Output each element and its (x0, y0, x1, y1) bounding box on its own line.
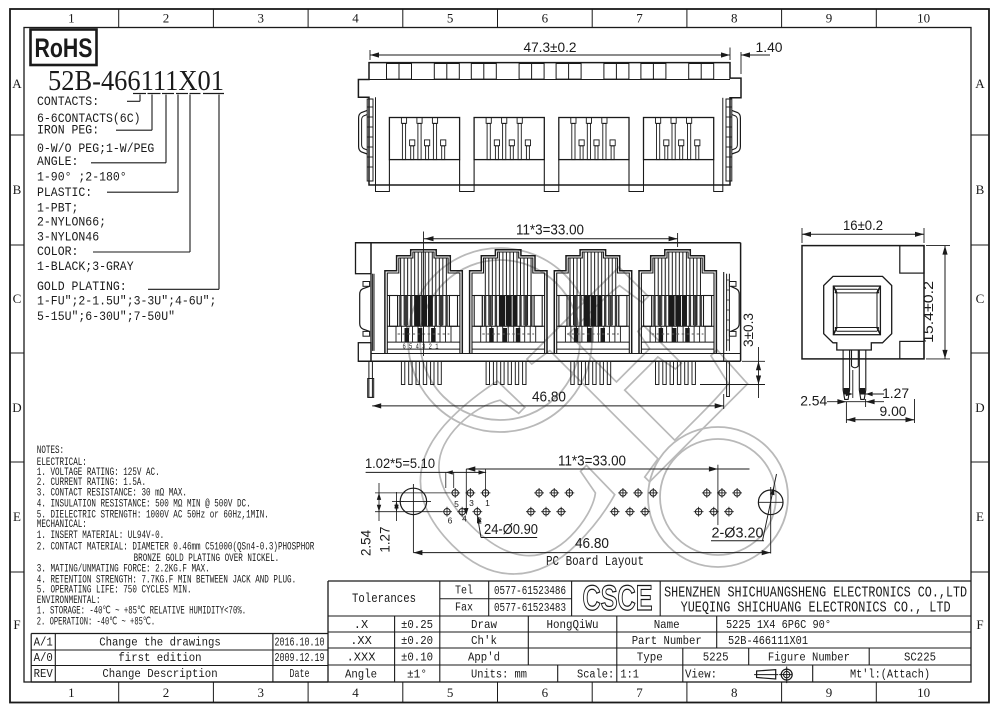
svg-text:1-PBT;: 1-PBT; (37, 202, 78, 216)
svg-text:5225: 5225 (703, 651, 729, 665)
svg-text:REV: REV (34, 667, 54, 681)
svg-text:C: C (13, 291, 22, 306)
svg-text:1-BLACK;3-GRAY: 1-BLACK;3-GRAY (37, 260, 134, 274)
svg-text:0-W/O PEG;1-W/PEG: 0-W/O PEG;1-W/PEG (37, 142, 154, 156)
svg-text:PC Board Layout: PC Board Layout (546, 555, 644, 570)
svg-text:2: 2 (163, 11, 170, 26)
svg-text:2-NYLON66;: 2-NYLON66; (37, 216, 106, 230)
svg-text:Date: Date (290, 667, 310, 681)
svg-text:E: E (13, 509, 21, 524)
svg-text:3±0.3: 3±0.3 (740, 313, 756, 347)
svg-text:±1°: ±1° (407, 668, 427, 682)
svg-text:Draw: Draw (471, 618, 498, 632)
svg-text:46.80: 46.80 (575, 535, 609, 552)
svg-text:3: 3 (258, 685, 265, 700)
svg-text:4: 4 (352, 685, 359, 700)
svg-text:5: 5 (454, 499, 459, 509)
svg-text:4: 4 (462, 514, 467, 524)
svg-text:±0.20: ±0.20 (401, 634, 433, 648)
svg-text:.X: .X (354, 618, 368, 632)
svg-text:2.54: 2.54 (800, 393, 827, 409)
svg-text:2.54: 2.54 (359, 530, 374, 556)
svg-text:3-NYLON46: 3-NYLON46 (37, 231, 99, 245)
svg-text:Tolerances: Tolerances (352, 592, 416, 606)
svg-text:PLASTIC:: PLASTIC: (37, 186, 92, 200)
svg-text:7: 7 (636, 685, 643, 700)
svg-text:Mt'l:(Attach): Mt'l:(Attach) (850, 669, 930, 682)
svg-text:App'd: App'd (468, 651, 500, 665)
svg-text:8: 8 (731, 11, 738, 26)
svg-text:1. INSERT MATERIAL: UL94V-0.: 1. INSERT MATERIAL: UL94V-0. (37, 530, 164, 542)
svg-text:Change Description: Change Description (102, 667, 217, 681)
svg-text:CSCE: CSCE (583, 579, 653, 618)
svg-text:0577-61523483: 0577-61523483 (494, 602, 566, 615)
svg-text:A/1: A/1 (34, 636, 53, 650)
svg-text:±0.10: ±0.10 (401, 651, 433, 665)
svg-text:2: 2 (163, 685, 170, 700)
svg-text:YUEQING SHICHUANG ELECTRONICS: YUEQING SHICHUANG ELECTRONICS CO., LTD (681, 600, 951, 617)
svg-text:10: 10 (917, 685, 930, 700)
svg-text:8: 8 (731, 685, 738, 700)
svg-text:.XXX: .XXX (347, 651, 376, 665)
svg-text:15.4±0.2: 15.4±0.2 (920, 281, 936, 343)
svg-text:HongQiWu: HongQiWu (547, 618, 599, 632)
svg-text:.XX: .XX (350, 634, 372, 648)
svg-text:10: 10 (917, 11, 930, 26)
svg-text:Part Number: Part Number (632, 634, 702, 648)
svg-text:1.02*5=5.10: 1.02*5=5.10 (365, 455, 435, 471)
svg-text:Figure Number: Figure Number (768, 651, 850, 665)
svg-text:9: 9 (826, 685, 833, 700)
svg-text:1-90° ;2-180°: 1-90° ;2-180° (37, 171, 127, 185)
svg-text:B: B (976, 182, 985, 197)
svg-text:1.40: 1.40 (756, 39, 783, 55)
svg-text:1.27: 1.27 (882, 385, 909, 401)
svg-text:1-FU″;2-1.5U″;3-3U″;4-6U″;: 1-FU″;2-1.5U″;3-3U″;4-6U″; (37, 295, 216, 309)
svg-text:IRON PEG:: IRON PEG: (37, 124, 99, 138)
svg-text:16±0.2: 16±0.2 (843, 217, 883, 233)
svg-text:52B-466111X01: 52B-466111X01 (728, 634, 808, 648)
svg-text:11*3=33.00: 11*3=33.00 (558, 454, 626, 470)
svg-text:6: 6 (448, 516, 453, 526)
svg-text:F: F (13, 617, 20, 632)
svg-text:5: 5 (447, 685, 454, 700)
svg-text:Ch'k: Ch'k (471, 634, 497, 648)
svg-text:2009.12.19: 2009.12.19 (275, 651, 325, 665)
svg-text:2. OPERATION: -40℃ ~ +85℃.: 2. OPERATION: -40℃ ~ +85℃. (37, 616, 155, 628)
svg-text:B: B (13, 182, 22, 197)
svg-text:Type: Type (637, 651, 663, 665)
svg-text:E: E (976, 509, 984, 524)
svg-text:3: 3 (258, 11, 265, 26)
svg-text:Tel: Tel (455, 585, 473, 598)
svg-text:A: A (975, 76, 985, 91)
svg-text:RoHS: RoHS (35, 33, 93, 63)
svg-text:C: C (976, 291, 985, 306)
svg-text:GOLD PLATING:: GOLD PLATING: (37, 280, 127, 294)
svg-text:first edition: first edition (118, 651, 201, 665)
svg-text:ANGLE:: ANGLE: (37, 155, 78, 169)
svg-text:View:: View: (685, 669, 717, 682)
svg-text:9.00: 9.00 (880, 403, 907, 419)
svg-text:2016.10.10: 2016.10.10 (275, 636, 325, 650)
svg-text:47.3±0.2: 47.3±0.2 (524, 39, 577, 55)
svg-text:4: 4 (352, 11, 359, 26)
svg-text:1: 1 (485, 498, 490, 508)
svg-text:46.80: 46.80 (532, 389, 566, 406)
svg-text:Fax: Fax (455, 602, 473, 615)
svg-text:5-15U″;6-30U″;7-50U″: 5-15U″;6-30U″;7-50U″ (37, 310, 175, 324)
svg-text:Scale: 1:1: Scale: 1:1 (577, 669, 639, 682)
svg-text:NOTES:: NOTES: (37, 445, 64, 457)
svg-text:A: A (12, 76, 22, 91)
svg-text:±0.25: ±0.25 (401, 618, 433, 632)
svg-text:Units: mm: Units: mm (471, 669, 527, 682)
svg-text:6: 6 (542, 685, 549, 700)
svg-text:5225 1X4 6P6C 90°: 5225 1X4 6P6C 90° (726, 618, 831, 632)
svg-text:7: 7 (636, 11, 643, 26)
svg-text:9: 9 (826, 11, 833, 26)
svg-text:D: D (975, 400, 984, 415)
svg-text:D: D (12, 400, 21, 415)
svg-text:6: 6 (542, 11, 549, 26)
svg-text:24-Ø0.90: 24-Ø0.90 (484, 522, 538, 538)
svg-text:2. CONTACT MATERIAL: DIAMETER: 2. CONTACT MATERIAL: DIAMETER 0.46mm C51… (37, 542, 315, 554)
svg-text:CONTACTS:: CONTACTS: (37, 95, 99, 109)
svg-text:1: 1 (68, 11, 75, 26)
svg-text:Name: Name (654, 618, 680, 632)
svg-text:52B-466111X01: 52B-466111X01 (48, 65, 224, 97)
svg-text:5: 5 (447, 11, 454, 26)
svg-text:Change the drawings: Change the drawings (99, 636, 221, 650)
svg-text:1: 1 (68, 685, 75, 700)
svg-text:6 5 4 3 2 1: 6 5 4 3 2 1 (403, 344, 439, 352)
svg-text:1.27: 1.27 (378, 527, 393, 553)
svg-text:0577-61523486: 0577-61523486 (494, 585, 566, 598)
svg-text:2-Ø3.20: 2-Ø3.20 (712, 526, 764, 542)
svg-text:A/0: A/0 (34, 651, 53, 665)
svg-text:COLOR:: COLOR: (37, 245, 78, 259)
svg-text:F: F (976, 617, 983, 632)
svg-text:3: 3 (469, 498, 474, 508)
svg-text:Angle: Angle (345, 668, 377, 682)
svg-text:11*3=33.00: 11*3=33.00 (516, 223, 584, 239)
svg-text:SC225: SC225 (904, 651, 936, 665)
